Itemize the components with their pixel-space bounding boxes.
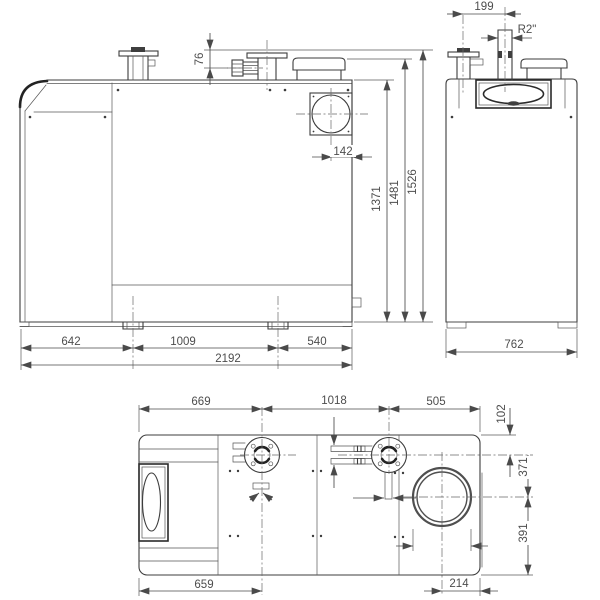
dim-height-collar-label: 1481 [389, 180, 401, 206]
dim-flue-to-front-label: 391 [518, 523, 530, 542]
top-drain-nozzle [250, 483, 272, 500]
callout-pipe-thread: R2" [481, 24, 536, 38]
dim-flange-spacing-label: 1018 [321, 395, 347, 407]
front-feet [123, 296, 288, 371]
dim-flange2-to-rear-label: 505 [426, 396, 445, 408]
dim-pipe-thread-label: R2" [518, 24, 537, 36]
dim-height-body-label: 1371 [371, 186, 383, 212]
dim-front-to-flange1-label: 669 [191, 396, 210, 408]
dim-total-length-label: 2192 [215, 353, 241, 365]
side-body-outline [446, 79, 577, 328]
dim-pipe-height-label: 76 [194, 53, 206, 66]
side-view: 199 R2" 762 [446, 1, 577, 358]
top-flange-1 [233, 438, 296, 473]
side-cleaning-hatch [476, 80, 551, 108]
dim-foot-right-label: 540 [307, 336, 326, 348]
top-view: 669 1018 505 659 214 102 371 [139, 395, 533, 596]
side-pipe-flange [448, 15, 483, 95]
dim-foot-spacing-label: 1009 [170, 336, 196, 348]
dim-flue-to-edge-label: 142 [333, 146, 352, 158]
dim-total-width-label: 762 [504, 339, 523, 351]
dim-front-to-drain-label: 659 [194, 579, 213, 591]
front-pipe-flange-center [227, 40, 287, 90]
front-flue-collar-cap [293, 58, 345, 80]
drawing-page: 76 142 1371 1481 1526 [0, 0, 600, 600]
dim-heights: 1371 1481 1526 [347, 50, 433, 322]
dim-height-total-label: 1526 [407, 169, 419, 195]
technical-drawing: 76 142 1371 1481 1526 [0, 0, 600, 600]
top-dims-lower: 659 214 [139, 577, 498, 596]
dim-flue-to-edge: 142 [312, 145, 372, 158]
top-flue-opening [396, 452, 533, 595]
dim-pipes-to-flue-label: 371 [518, 457, 530, 476]
front-pipe-flange-left [119, 47, 158, 80]
dim-flue-to-rear-label: 214 [449, 578, 469, 590]
top-access-door [139, 464, 168, 541]
dim-foot-left-label: 642 [61, 336, 80, 348]
dim-edge-to-pipes-label: 102 [496, 404, 508, 423]
dim-total-width: 762 [446, 329, 577, 358]
top-dims-right: 102 371 391 [481, 404, 533, 575]
dim-pipe-offset: 199 [447, 1, 521, 14]
dim-lengths: 642 1009 540 2192 [21, 329, 352, 370]
side-flue-collar-cap [521, 59, 567, 79]
dim-pipe-offset-label: 199 [474, 1, 493, 13]
front-view: 76 142 1371 1481 1526 [20, 33, 433, 371]
